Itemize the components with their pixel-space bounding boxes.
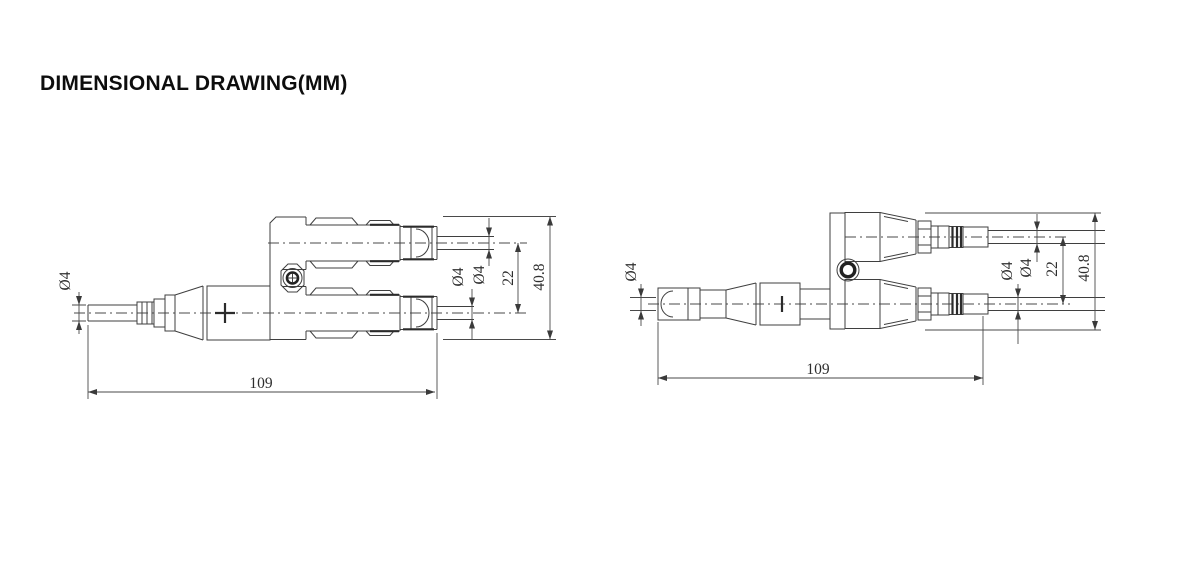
dim-label-cable-upper: Ø4 [471, 265, 488, 284]
dim-branch-spacing: 22 [500, 243, 521, 313]
dim-label-overall-length: 109 [249, 375, 273, 392]
dim-label-cable-lower: Ø4 [999, 261, 1016, 280]
drawing-canvas: Ø4 Ø4 Ø4 22 [0, 0, 1199, 567]
dim-label-branch-spacing: 22 [500, 270, 517, 286]
dim-label-overall-height: 40.8 [1076, 254, 1093, 281]
dim-cable-left: Ø4 [623, 262, 656, 326]
left-connector-drawing: Ø4 Ø4 Ø4 22 [57, 217, 556, 400]
ferrule-stripes [953, 294, 962, 315]
dim-branch-spacing: 22 [1044, 237, 1066, 304]
dim-overall-length: 109 [88, 325, 437, 399]
o-ring [841, 263, 855, 277]
plus-marking [215, 303, 235, 323]
dim-label-cable-left: Ø4 [57, 271, 74, 290]
dimensional-drawing-page: DIMENSIONAL DRAWING(MM) [0, 0, 1199, 567]
dim-label-overall-length: 109 [806, 361, 830, 378]
dim-label-branch-spacing: 22 [1044, 261, 1061, 277]
seal-marks [370, 295, 434, 331]
dim-label-cable-upper: Ø4 [1018, 258, 1035, 277]
left-dimensions: Ø4 Ø4 Ø4 22 [57, 217, 556, 400]
dim-cable-upper: Ø4 [471, 218, 492, 284]
dim-label-overall-height: 40.8 [531, 263, 548, 290]
left-y-block [270, 217, 306, 340]
dim-overall-length: 109 [658, 316, 983, 385]
dim-cable-left: Ø4 [57, 271, 86, 334]
cable-upper [988, 231, 1105, 244]
dim-label-cable-lower: Ø4 [450, 267, 467, 286]
right-dimensions: Ø4 Ø4 Ø4 22 [623, 213, 1101, 385]
dim-label-cable-left: Ø4 [623, 262, 640, 281]
dim-cable-upper: Ø4 [1018, 214, 1040, 277]
right-connector-drawing: Ø4 Ø4 Ø4 22 [623, 213, 1105, 386]
